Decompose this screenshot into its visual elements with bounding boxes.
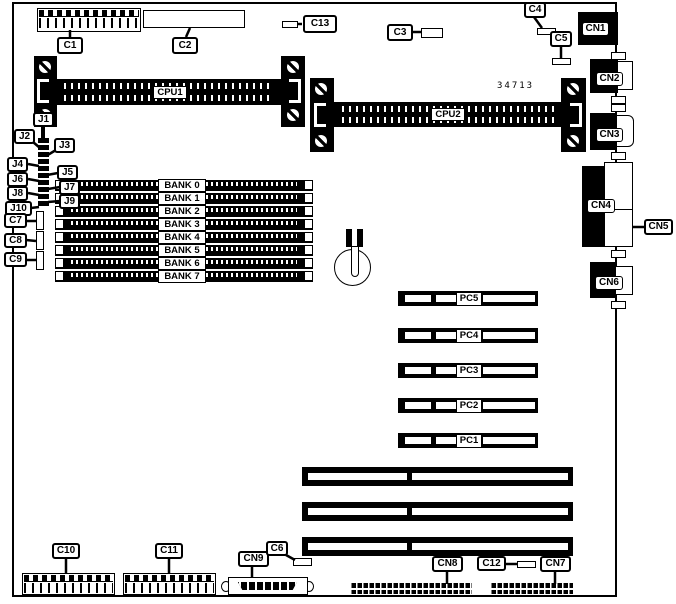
label-c7: C7 <box>4 213 27 228</box>
label-j8: J8 <box>7 186 28 201</box>
label-c5: C5 <box>550 31 572 47</box>
label-j1: J1 <box>33 112 54 127</box>
label-j9: J9 <box>59 194 80 209</box>
label-c4: C4 <box>524 2 546 18</box>
leader-lines <box>0 0 676 604</box>
label-cn9: CN9 <box>238 551 269 567</box>
label-j2: J2 <box>14 129 35 144</box>
label-j3: J3 <box>54 138 75 153</box>
label-cn1: CN1 <box>582 22 609 36</box>
label-c3: C3 <box>387 24 413 41</box>
label-c10: C10 <box>52 543 80 559</box>
label-c12: C12 <box>477 556 506 571</box>
label-c11: C11 <box>155 543 183 559</box>
label-cn6: CN6 <box>595 276 623 290</box>
label-cn4: CN4 <box>587 199 615 213</box>
label-c9: C9 <box>4 252 27 267</box>
label-j6: J6 <box>7 172 28 187</box>
label-c13: C13 <box>303 15 337 33</box>
label-cn5: CN5 <box>644 219 673 235</box>
label-j5: J5 <box>57 165 78 180</box>
label-j7: J7 <box>59 180 80 195</box>
label-c1: C1 <box>57 37 83 54</box>
label-cn3: CN3 <box>596 128 623 142</box>
label-c6: C6 <box>266 541 288 556</box>
motherboard-diagram: C1 C2 C13 C3 C4 C5 34713 CPU1 CPU2 <box>0 0 676 604</box>
label-cn7: CN7 <box>540 556 571 572</box>
label-cn8: CN8 <box>432 556 463 572</box>
label-c2: C2 <box>172 37 198 54</box>
label-j4: J4 <box>7 157 28 172</box>
label-c8: C8 <box>4 233 27 248</box>
label-cn2: CN2 <box>596 72 623 86</box>
